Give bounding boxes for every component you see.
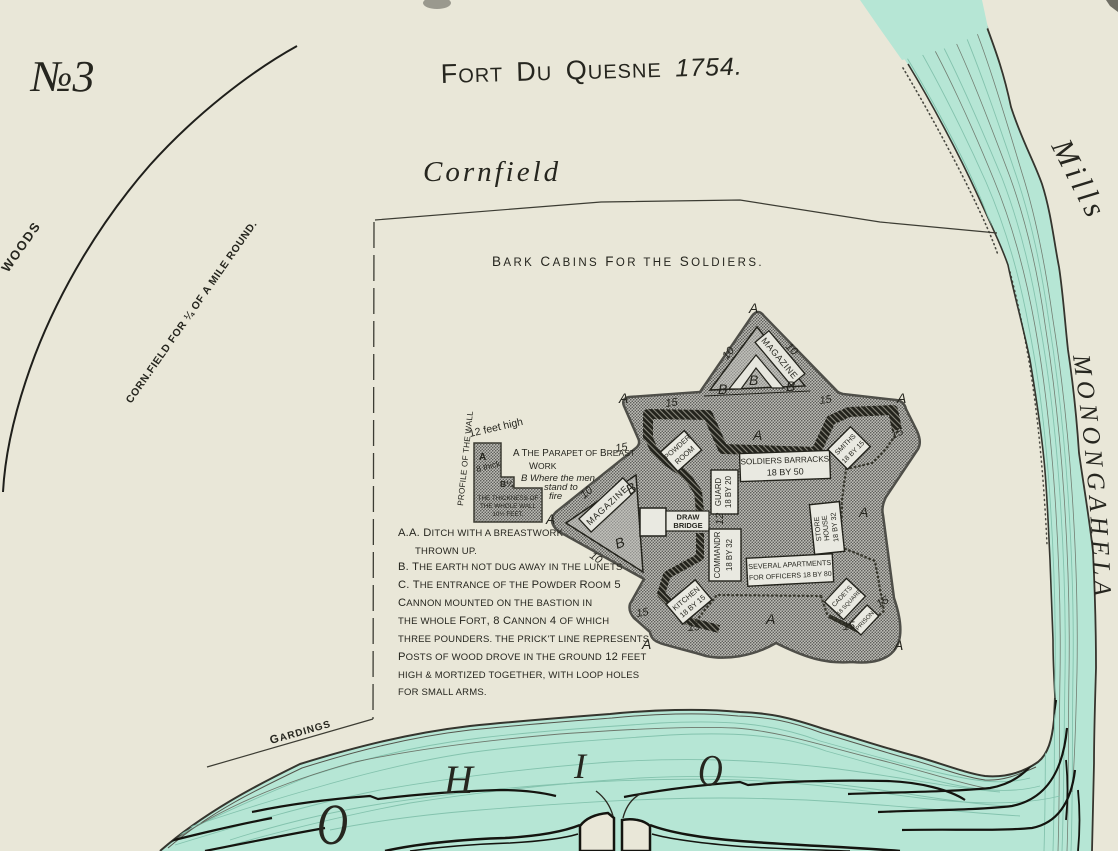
- svg-text:THE THICKNESS OF: THE THICKNESS OF: [478, 495, 539, 502]
- svg-text:A: A: [893, 637, 903, 653]
- svg-text:B: B: [786, 378, 795, 394]
- svg-text:10½ FEET.: 10½ FEET.: [492, 510, 523, 518]
- svg-text:B¼: B¼: [500, 479, 514, 489]
- svg-text:I: I: [573, 746, 588, 786]
- svg-text:O: O: [317, 794, 348, 851]
- svg-text:CANNON MOUNTED ON THE BASTION: CANNON MOUNTED ON THE BASTION IN: [398, 597, 592, 609]
- svg-text:A: A: [896, 390, 906, 406]
- svg-text:A: A: [748, 300, 758, 316]
- svg-text:A.A. DITCH WITH A BREASTWORK: A.A. DITCH WITH A BREASTWORK: [398, 527, 564, 539]
- svg-text:A: A: [858, 504, 868, 520]
- svg-text:POSTS OF WOOD DROVE IN THE GRO: POSTS OF WOOD DROVE IN THE GROUND 12 FEE…: [398, 651, 646, 663]
- svg-text:B: B: [718, 381, 727, 397]
- svg-text:18 BY 20: 18 BY 20: [724, 475, 733, 508]
- svg-text:18 BY 32: 18 BY 32: [725, 539, 734, 571]
- svg-text:A: A: [618, 390, 628, 406]
- svg-text:18 BY 50: 18 BY 50: [767, 466, 804, 477]
- svg-text:№3: №3: [29, 52, 95, 101]
- svg-text:COMMANDR: COMMANDR: [713, 531, 722, 578]
- svg-text:THREE POUNDERS. THE PRICK'T LI: THREE POUNDERS. THE PRICK'T LINE REPRESE…: [398, 634, 649, 645]
- svg-text:A: A: [545, 511, 555, 527]
- svg-text:THROWN UP.: THROWN UP.: [415, 546, 477, 557]
- svg-text:15: 15: [687, 621, 701, 634]
- svg-text:A: A: [752, 427, 762, 443]
- svg-text:fire: fire: [549, 491, 562, 502]
- svg-text:BRIDGE: BRIDGE: [673, 521, 702, 530]
- svg-text:B. THE EARTH NOT DUG AWAY IN T: B. THE EARTH NOT DUG AWAY IN THE LUNETS: [398, 561, 623, 573]
- svg-text:THE WHOLE FORT, 8 CANNON 4 OF: THE WHOLE FORT, 8 CANNON 4 OF WHICH: [398, 615, 609, 627]
- svg-text:H: H: [443, 757, 475, 802]
- svg-text:WORK: WORK: [529, 461, 557, 472]
- svg-text:15: 15: [842, 620, 856, 633]
- svg-text:C. THE ENTRANCE OF THE POWDER: C. THE ENTRANCE OF THE POWDER ROOM 5: [398, 579, 621, 591]
- svg-text:HIGH & MORTIZED TOGETHER, WITH: HIGH & MORTIZED TOGETHER, WITH LOOP HOLE…: [398, 670, 639, 681]
- svg-text:BARK CABINS FOR THE SOLDIERS.: BARK CABINS FOR THE SOLDIERS.: [492, 254, 764, 269]
- svg-text:O: O: [698, 746, 723, 795]
- svg-text:A: A: [765, 611, 775, 627]
- svg-text:12: 12: [714, 513, 726, 525]
- svg-text:FOR SMALL ARMS.: FOR SMALL ARMS.: [398, 687, 487, 698]
- svg-text:B: B: [749, 372, 758, 388]
- svg-text:THE WHOLE WALL: THE WHOLE WALL: [480, 503, 537, 510]
- svg-text:Cornfield: Cornfield: [423, 156, 561, 188]
- svg-text:GUARD: GUARD: [714, 478, 723, 507]
- svg-text:A THE PARAPET OF BREAST: A THE PARAPET OF BREAST: [513, 448, 636, 459]
